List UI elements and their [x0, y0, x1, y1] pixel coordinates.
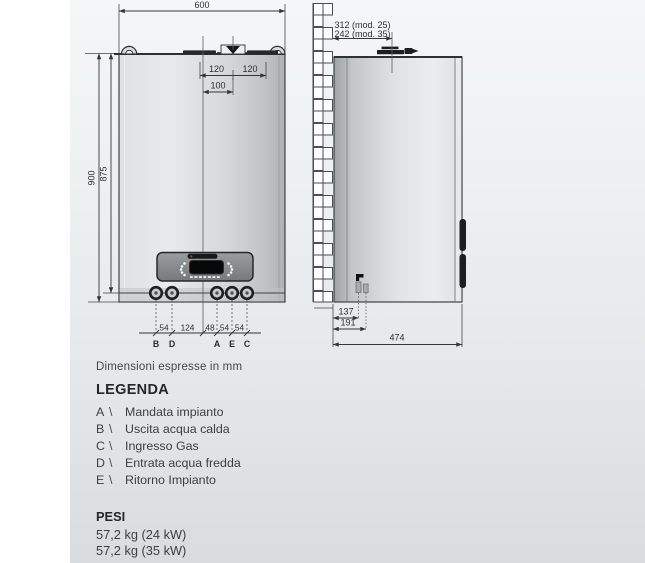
side-flue-fitting — [377, 47, 419, 55]
dim-height-body-label: 875 — [99, 166, 109, 181]
legend: LEGENDA A\Mandata impianto B\Uscita acqu… — [96, 382, 241, 489]
port-label-d: D — [169, 339, 175, 349]
dim-flue-right-label: 120 — [242, 64, 257, 74]
dim-spacing-2: 124 — [181, 323, 195, 333]
legend-separator: \ — [109, 472, 125, 489]
legend-item-a: A\Mandata impianto — [96, 404, 241, 421]
side-view: 312 (mod. 25) 242 (mod. 35) 137 191 — [313, 3, 466, 347]
legend-key: E — [96, 472, 109, 489]
weight-24kw: 57,2 kg (24 kW) — [96, 527, 186, 543]
legend-label: Uscita acqua calda — [125, 422, 230, 436]
port-label-b: B — [153, 339, 159, 349]
dim-spacing-3: 48 — [205, 323, 215, 333]
dim-spacing-4: 54 — [220, 323, 230, 333]
dim-height-total-label: 900 — [87, 170, 97, 185]
weight-35kw: 57,2 kg (35 kW) — [96, 543, 186, 559]
display — [190, 261, 224, 275]
dim-spacing-5: 54 — [235, 323, 245, 333]
legend-key: C — [96, 438, 109, 455]
port-label-c: C — [244, 339, 251, 349]
legend-label: Mandata impianto — [125, 405, 224, 419]
dim-depth-mod35-label: 242 (mod. 35) — [335, 29, 391, 39]
legend-separator: \ — [109, 455, 125, 472]
dim-width-label: 600 — [194, 0, 209, 10]
boiler-side-body — [334, 57, 462, 302]
legend-item-c: C\Ingresso Gas — [96, 438, 241, 455]
dim-depth-total-label: 474 — [389, 333, 404, 343]
legend-item-e: E\Ritorno Impianto — [96, 472, 241, 489]
port-label-e: E — [229, 339, 235, 349]
legend-separator: \ — [109, 438, 125, 455]
wall-section — [313, 3, 333, 308]
legend-label: Ritorno Impianto — [125, 473, 216, 487]
page: 600 — [0, 0, 645, 563]
dim-flue-center-label: 100 — [210, 81, 225, 91]
legend-key: A — [96, 404, 109, 421]
legend-label: Ingresso Gas — [125, 439, 199, 453]
legend-separator: \ — [109, 421, 125, 438]
dim-flue-left-label: 120 — [209, 64, 224, 74]
legend-item-d: D\Entrata acqua fredda — [96, 455, 241, 472]
legend-key: B — [96, 421, 109, 438]
dim-gas-offset-1-label: 137 — [338, 307, 353, 317]
control-panel — [157, 253, 253, 282]
port-label-a: A — [214, 339, 221, 349]
weights-section: PESI 57,2 kg (24 kW) 57,2 kg (35 kW) — [96, 509, 186, 559]
dim-spacing-1: 54 — [159, 323, 169, 333]
legend-key: D — [96, 455, 109, 472]
legend-item-b: B\Uscita acqua calda — [96, 421, 241, 438]
units-note: Dimensioni espresse in mm — [96, 361, 242, 373]
legend-label: Entrata acqua fredda — [125, 456, 241, 470]
dim-gas-offset-2-label: 191 — [340, 318, 355, 328]
legend-title: LEGENDA — [96, 382, 241, 398]
legend-separator: \ — [109, 404, 125, 421]
front-view: 600 — [85, 0, 285, 349]
weights-title: PESI — [96, 509, 186, 524]
